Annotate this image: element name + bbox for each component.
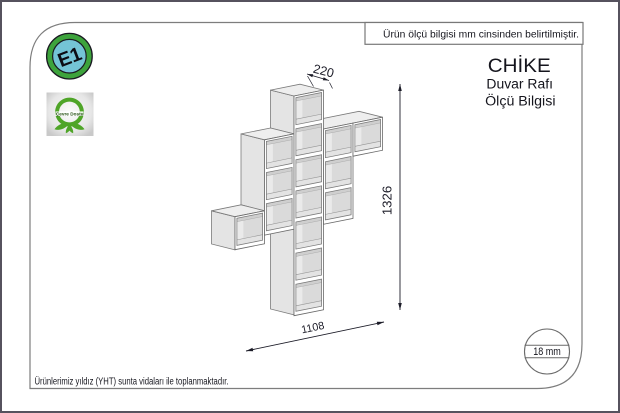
svg-text:1326: 1326: [380, 186, 395, 215]
svg-text:18 mm: 18 mm: [533, 346, 561, 358]
svg-text:Ürün ölçü bilgisi mm cinsinden: Ürün ölçü bilgisi mm cinsinden belirtilm…: [383, 30, 579, 41]
svg-text:Ürünlerimiz yıldız (YHT) sunta: Ürünlerimiz yıldız (YHT) sunta vidaları …: [35, 376, 229, 387]
svg-text:CHİKE: CHİKE: [488, 56, 551, 77]
svg-text:Ölçü Bilgisi: Ölçü Bilgisi: [485, 93, 555, 108]
svg-text:Duvar Rafı: Duvar Rafı: [486, 77, 553, 92]
svg-text:Çevre Dostu: Çevre Dostu: [56, 111, 84, 116]
